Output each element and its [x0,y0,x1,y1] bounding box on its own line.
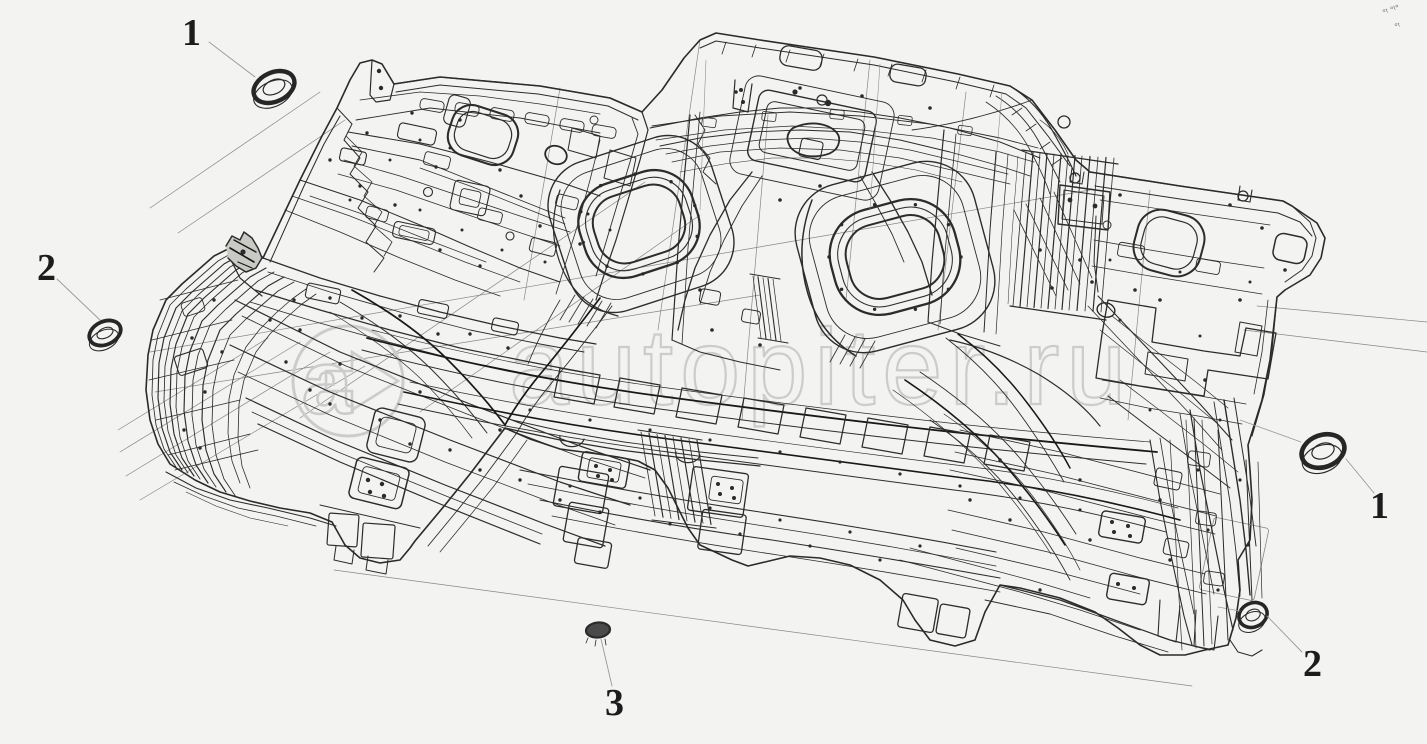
svg-text:1: 1 [182,12,201,54]
svg-text:2: 2 [37,247,56,289]
svg-text:3: 3 [605,682,624,724]
svg-text:autopiter.ru: autopiter.ru [509,306,1133,427]
svg-text:2: 2 [1303,643,1322,685]
svg-text:1: 1 [1370,485,1389,527]
